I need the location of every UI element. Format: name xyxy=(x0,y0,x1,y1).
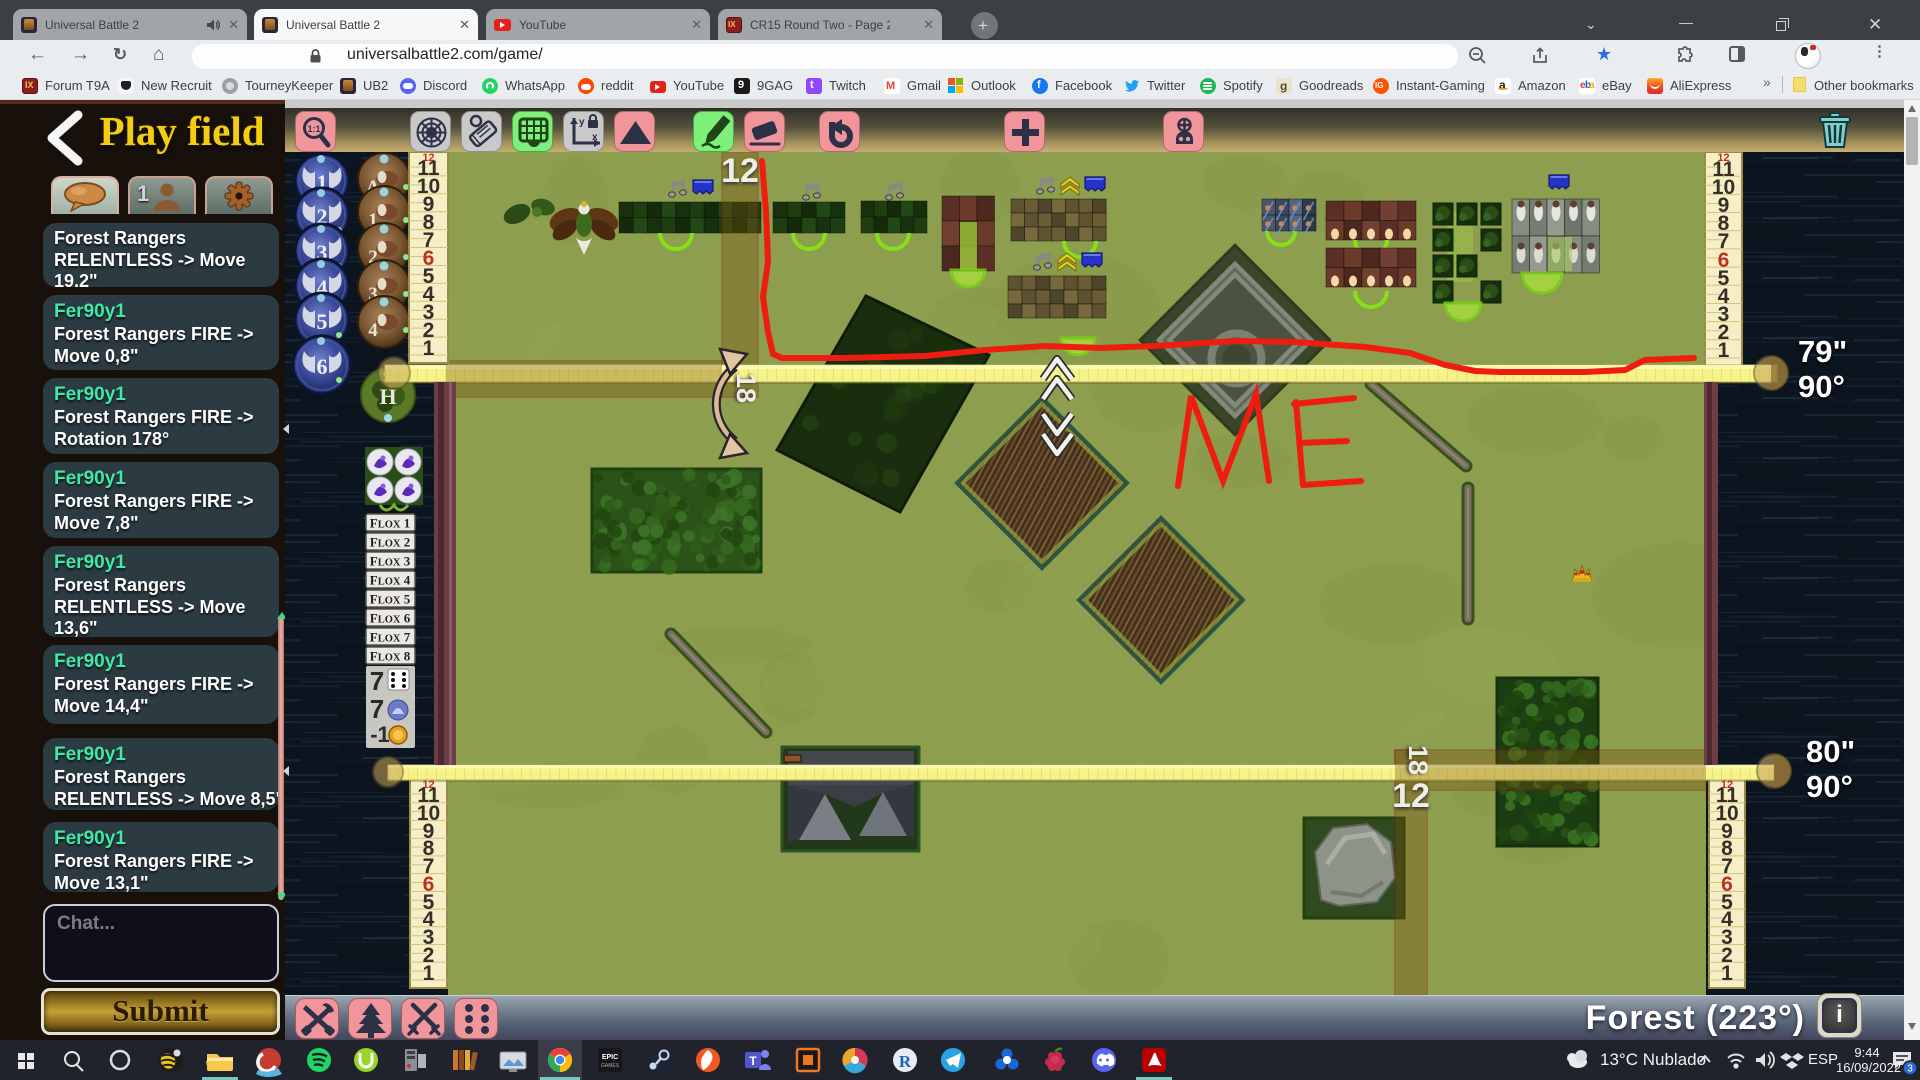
svg-text:1: 1 xyxy=(423,962,435,985)
svg-text:y: y xyxy=(579,117,585,128)
svg-text:90°: 90° xyxy=(1798,369,1845,404)
svg-text:12: 12 xyxy=(1392,777,1430,815)
svg-text:18: 18 xyxy=(731,373,761,403)
svg-text:5: 5 xyxy=(317,309,328,334)
svg-text:1: 1 xyxy=(423,337,435,360)
svg-text:EPIC: EPIC xyxy=(602,1054,618,1061)
svg-text:3: 3 xyxy=(1907,1064,1913,1075)
svg-text:18: 18 xyxy=(1403,745,1433,775)
svg-text:-1: -1 xyxy=(370,722,390,747)
svg-text:T: T xyxy=(749,1054,757,1068)
svg-text:x: x xyxy=(592,132,598,143)
svg-text:4: 4 xyxy=(368,320,378,341)
svg-text:6: 6 xyxy=(317,354,328,379)
svg-text:1: 1 xyxy=(1718,339,1730,362)
svg-text:1:1: 1:1 xyxy=(307,124,320,134)
svg-text:79": 79" xyxy=(1798,334,1847,369)
svg-text:R: R xyxy=(899,1052,912,1071)
svg-text:GAMES: GAMES xyxy=(601,1063,620,1069)
svg-text:1: 1 xyxy=(1721,962,1733,985)
svg-text:80": 80" xyxy=(1806,734,1855,769)
svg-text:12: 12 xyxy=(721,152,759,190)
svg-text:7: 7 xyxy=(370,666,384,696)
svg-text:90°: 90° xyxy=(1806,769,1853,804)
svg-text:7: 7 xyxy=(370,694,384,724)
